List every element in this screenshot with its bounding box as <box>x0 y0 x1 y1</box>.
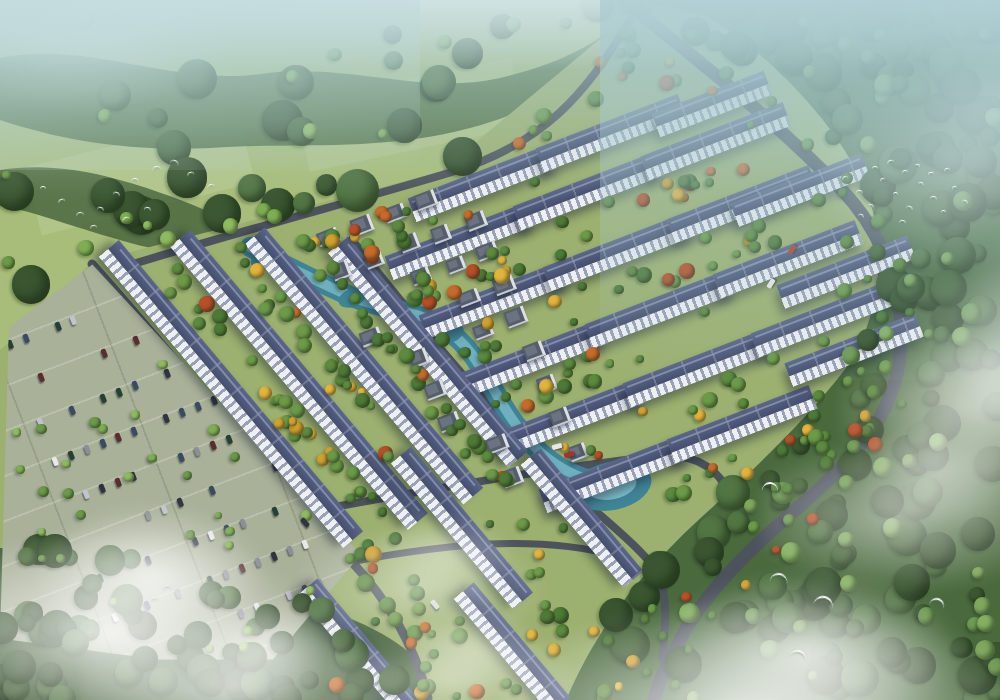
parked-car <box>114 477 121 487</box>
parked-car <box>116 387 123 397</box>
parked-car <box>132 381 139 391</box>
aerial-site-rendering <box>0 0 1000 700</box>
parked-car <box>130 471 137 481</box>
parked-car <box>285 590 292 600</box>
parked-car <box>177 498 184 508</box>
parked-car <box>271 506 278 516</box>
parked-car <box>99 438 106 448</box>
parked-car <box>225 434 232 444</box>
parked-car <box>37 417 44 427</box>
parked-car <box>100 393 107 403</box>
parked-car <box>101 348 108 358</box>
garden-plaza-center <box>492 563 502 573</box>
parked-car <box>301 584 308 594</box>
parked-car <box>254 602 261 612</box>
parked-car <box>145 510 152 520</box>
right-haze <box>600 0 1000 380</box>
parked-car <box>208 531 215 541</box>
parked-car <box>223 570 230 580</box>
parked-car <box>302 539 309 549</box>
parked-car <box>52 456 59 466</box>
parked-car <box>207 576 214 586</box>
parked-car <box>70 315 77 325</box>
parked-car <box>161 504 168 514</box>
parked-car <box>163 414 170 424</box>
parked-car <box>54 321 61 331</box>
parked-car <box>144 555 151 565</box>
parked-car <box>144 600 151 610</box>
parked-car <box>209 485 216 495</box>
parked-car <box>270 551 277 561</box>
parked-car <box>210 440 217 450</box>
parked-car <box>174 633 181 643</box>
left-haze <box>0 0 420 170</box>
parked-car <box>143 645 150 655</box>
parked-car <box>38 372 45 382</box>
parked-car <box>69 405 76 415</box>
parked-car <box>238 609 245 619</box>
parked-car <box>112 612 119 622</box>
parked-car <box>195 401 202 411</box>
parked-car <box>164 368 171 378</box>
parked-car <box>317 578 324 588</box>
parked-car <box>23 333 30 343</box>
parked-car <box>83 489 90 499</box>
parked-car <box>192 537 199 547</box>
parked-car <box>240 518 247 528</box>
parked-car <box>84 444 91 454</box>
parked-car <box>97 573 104 583</box>
parked-car <box>133 336 140 346</box>
parked-car <box>99 483 106 493</box>
parked-car <box>68 450 75 460</box>
parked-car <box>179 407 186 417</box>
parked-car <box>286 545 293 555</box>
parked-car <box>239 563 246 573</box>
parked-car <box>190 627 197 637</box>
parked-car <box>115 432 122 442</box>
parked-car <box>224 524 231 534</box>
parked-car <box>255 557 262 567</box>
parked-car <box>131 426 138 436</box>
parked-car <box>194 446 201 456</box>
parked-car <box>175 588 182 598</box>
parked-car <box>178 453 185 463</box>
